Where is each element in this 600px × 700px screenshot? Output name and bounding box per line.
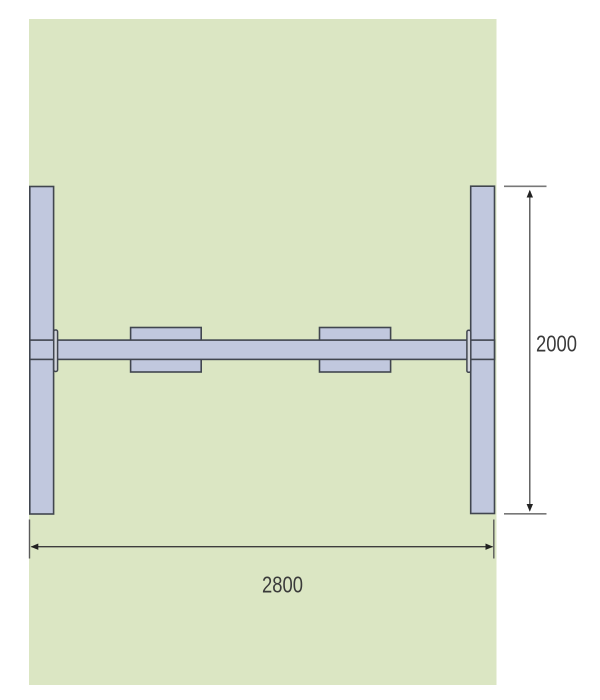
svg-text:2800: 2800	[262, 572, 303, 597]
svg-text:2000: 2000	[536, 332, 577, 357]
